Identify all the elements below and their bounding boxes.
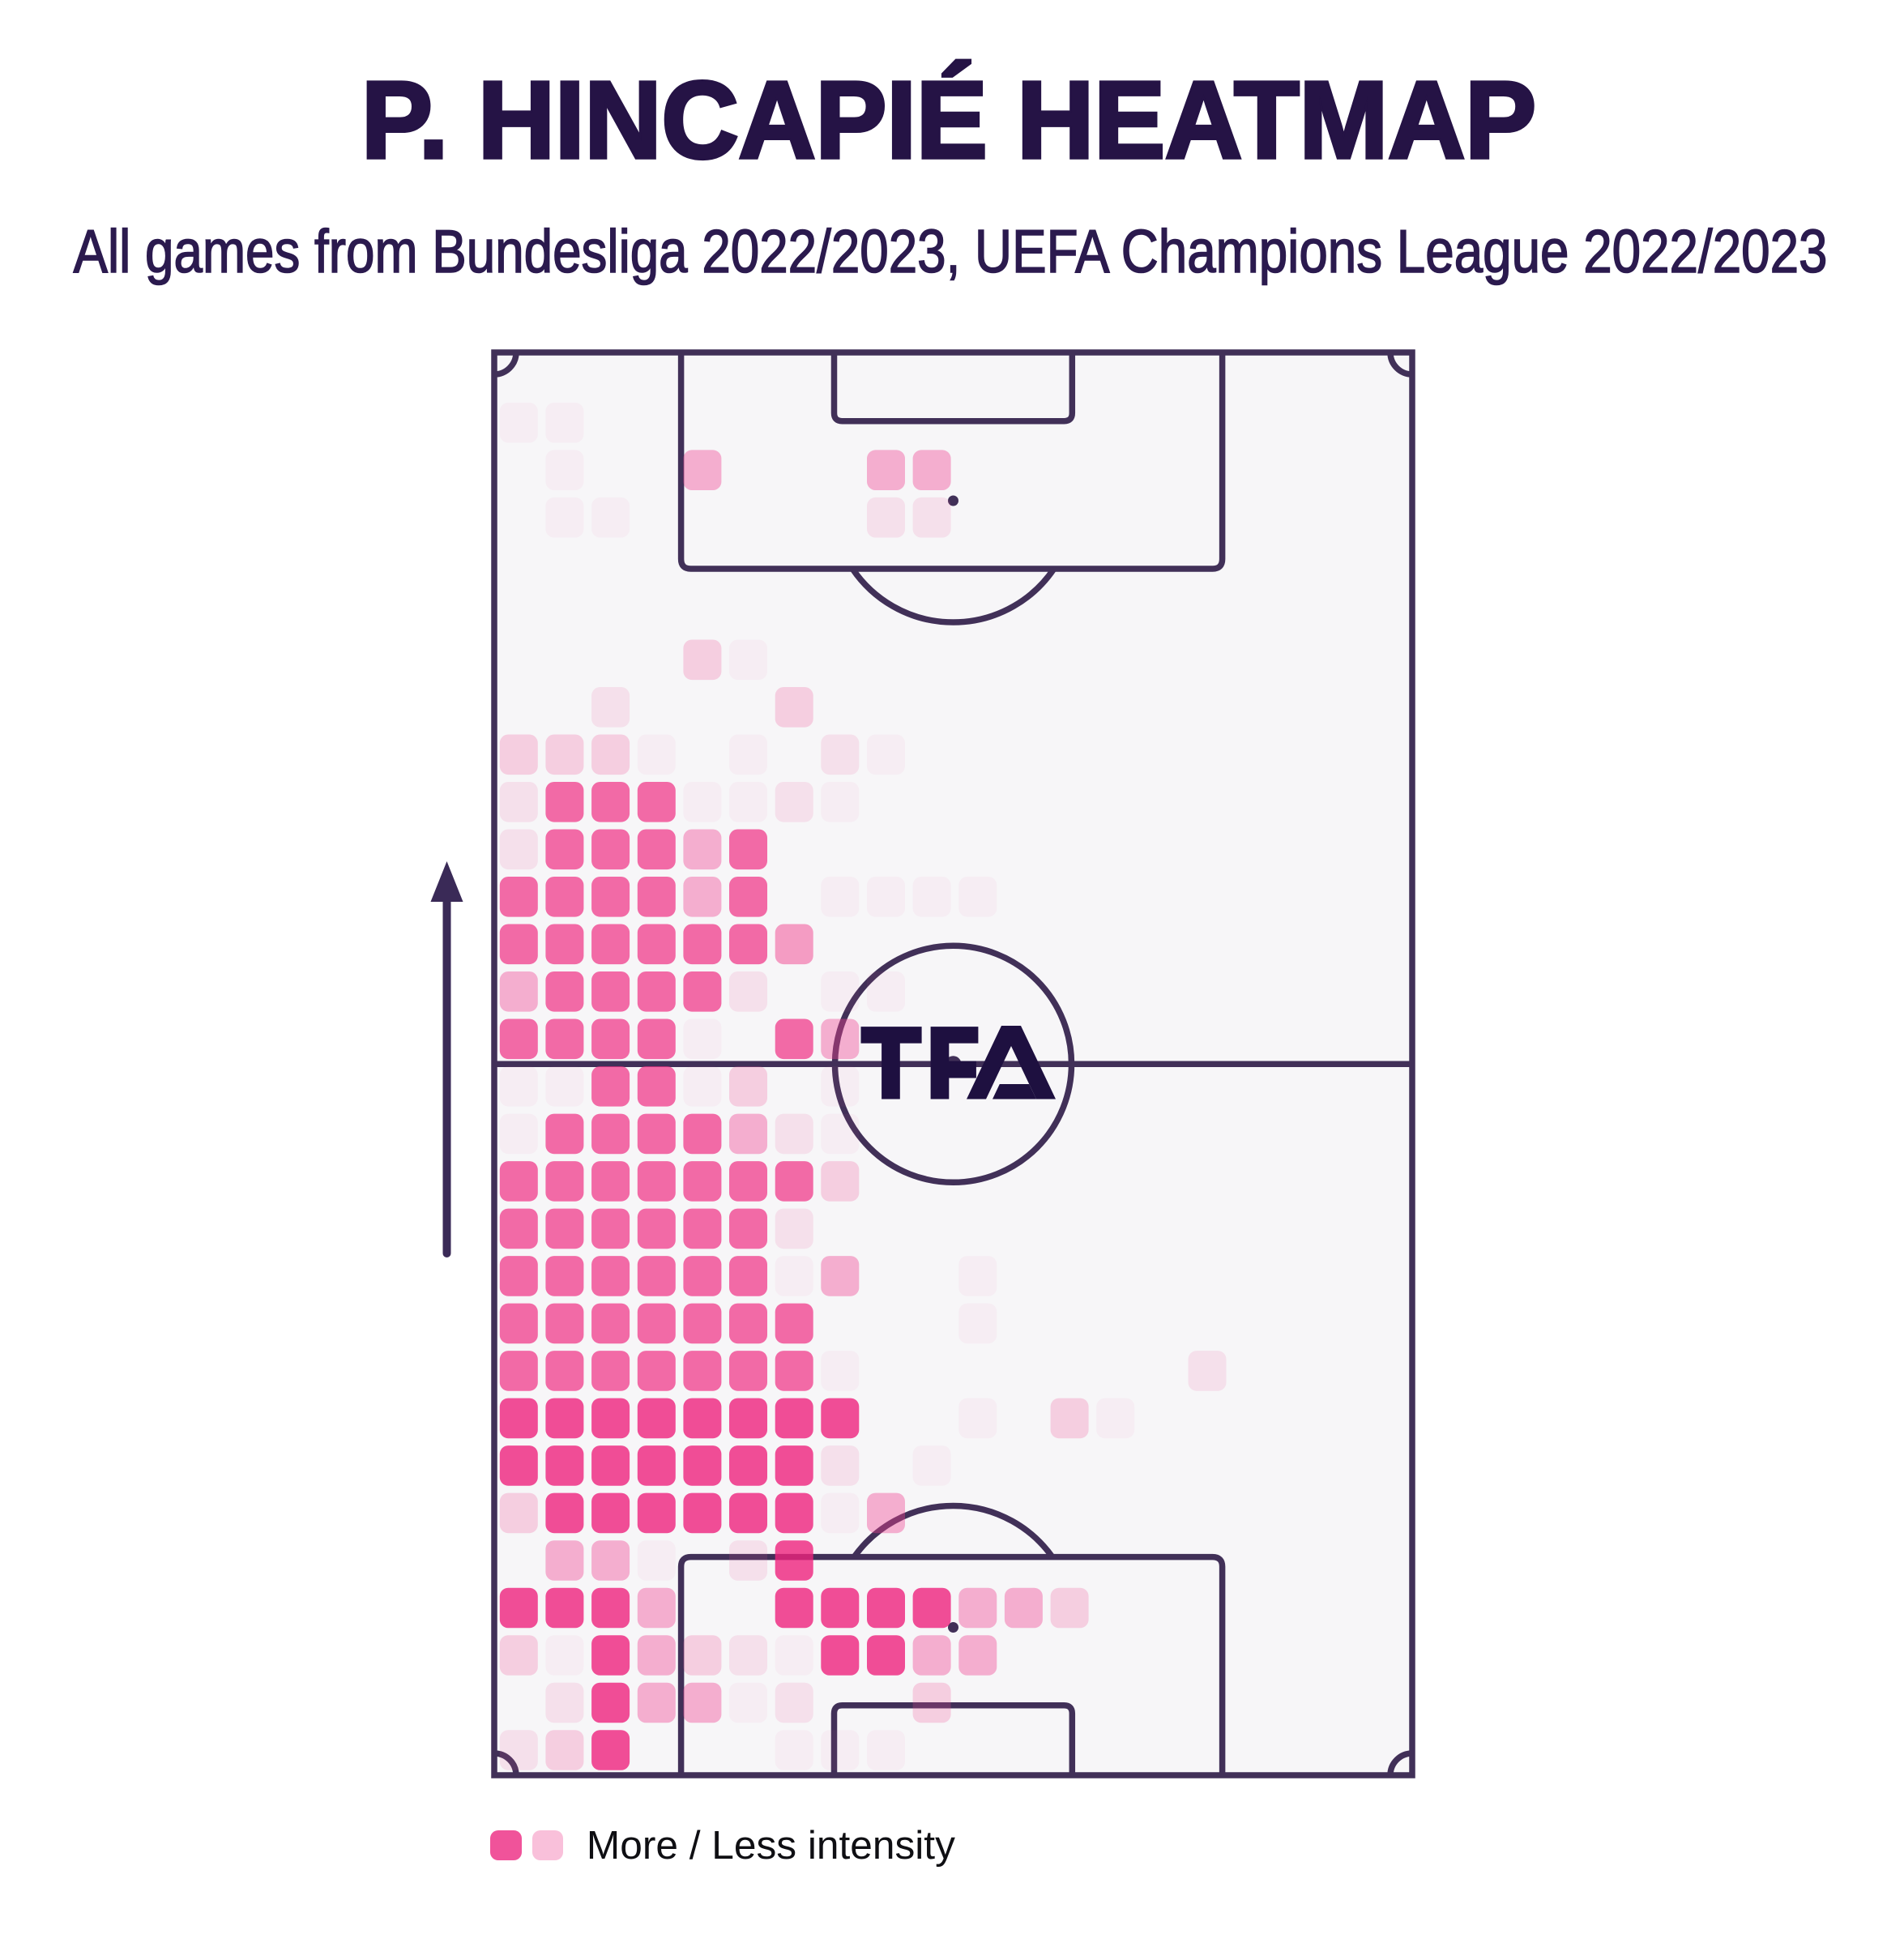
svg-text:All games from Bundesliga 2022: All games from Bundesliga 2022/2023, UEF…: [74, 217, 1828, 285]
svg-text:P. HINCAPIÉ HEATMAP: P. HINCAPIÉ HEATMAP: [361, 59, 1536, 181]
svg-text:More / Less intensity: More / Less intensity: [587, 1824, 955, 1868]
